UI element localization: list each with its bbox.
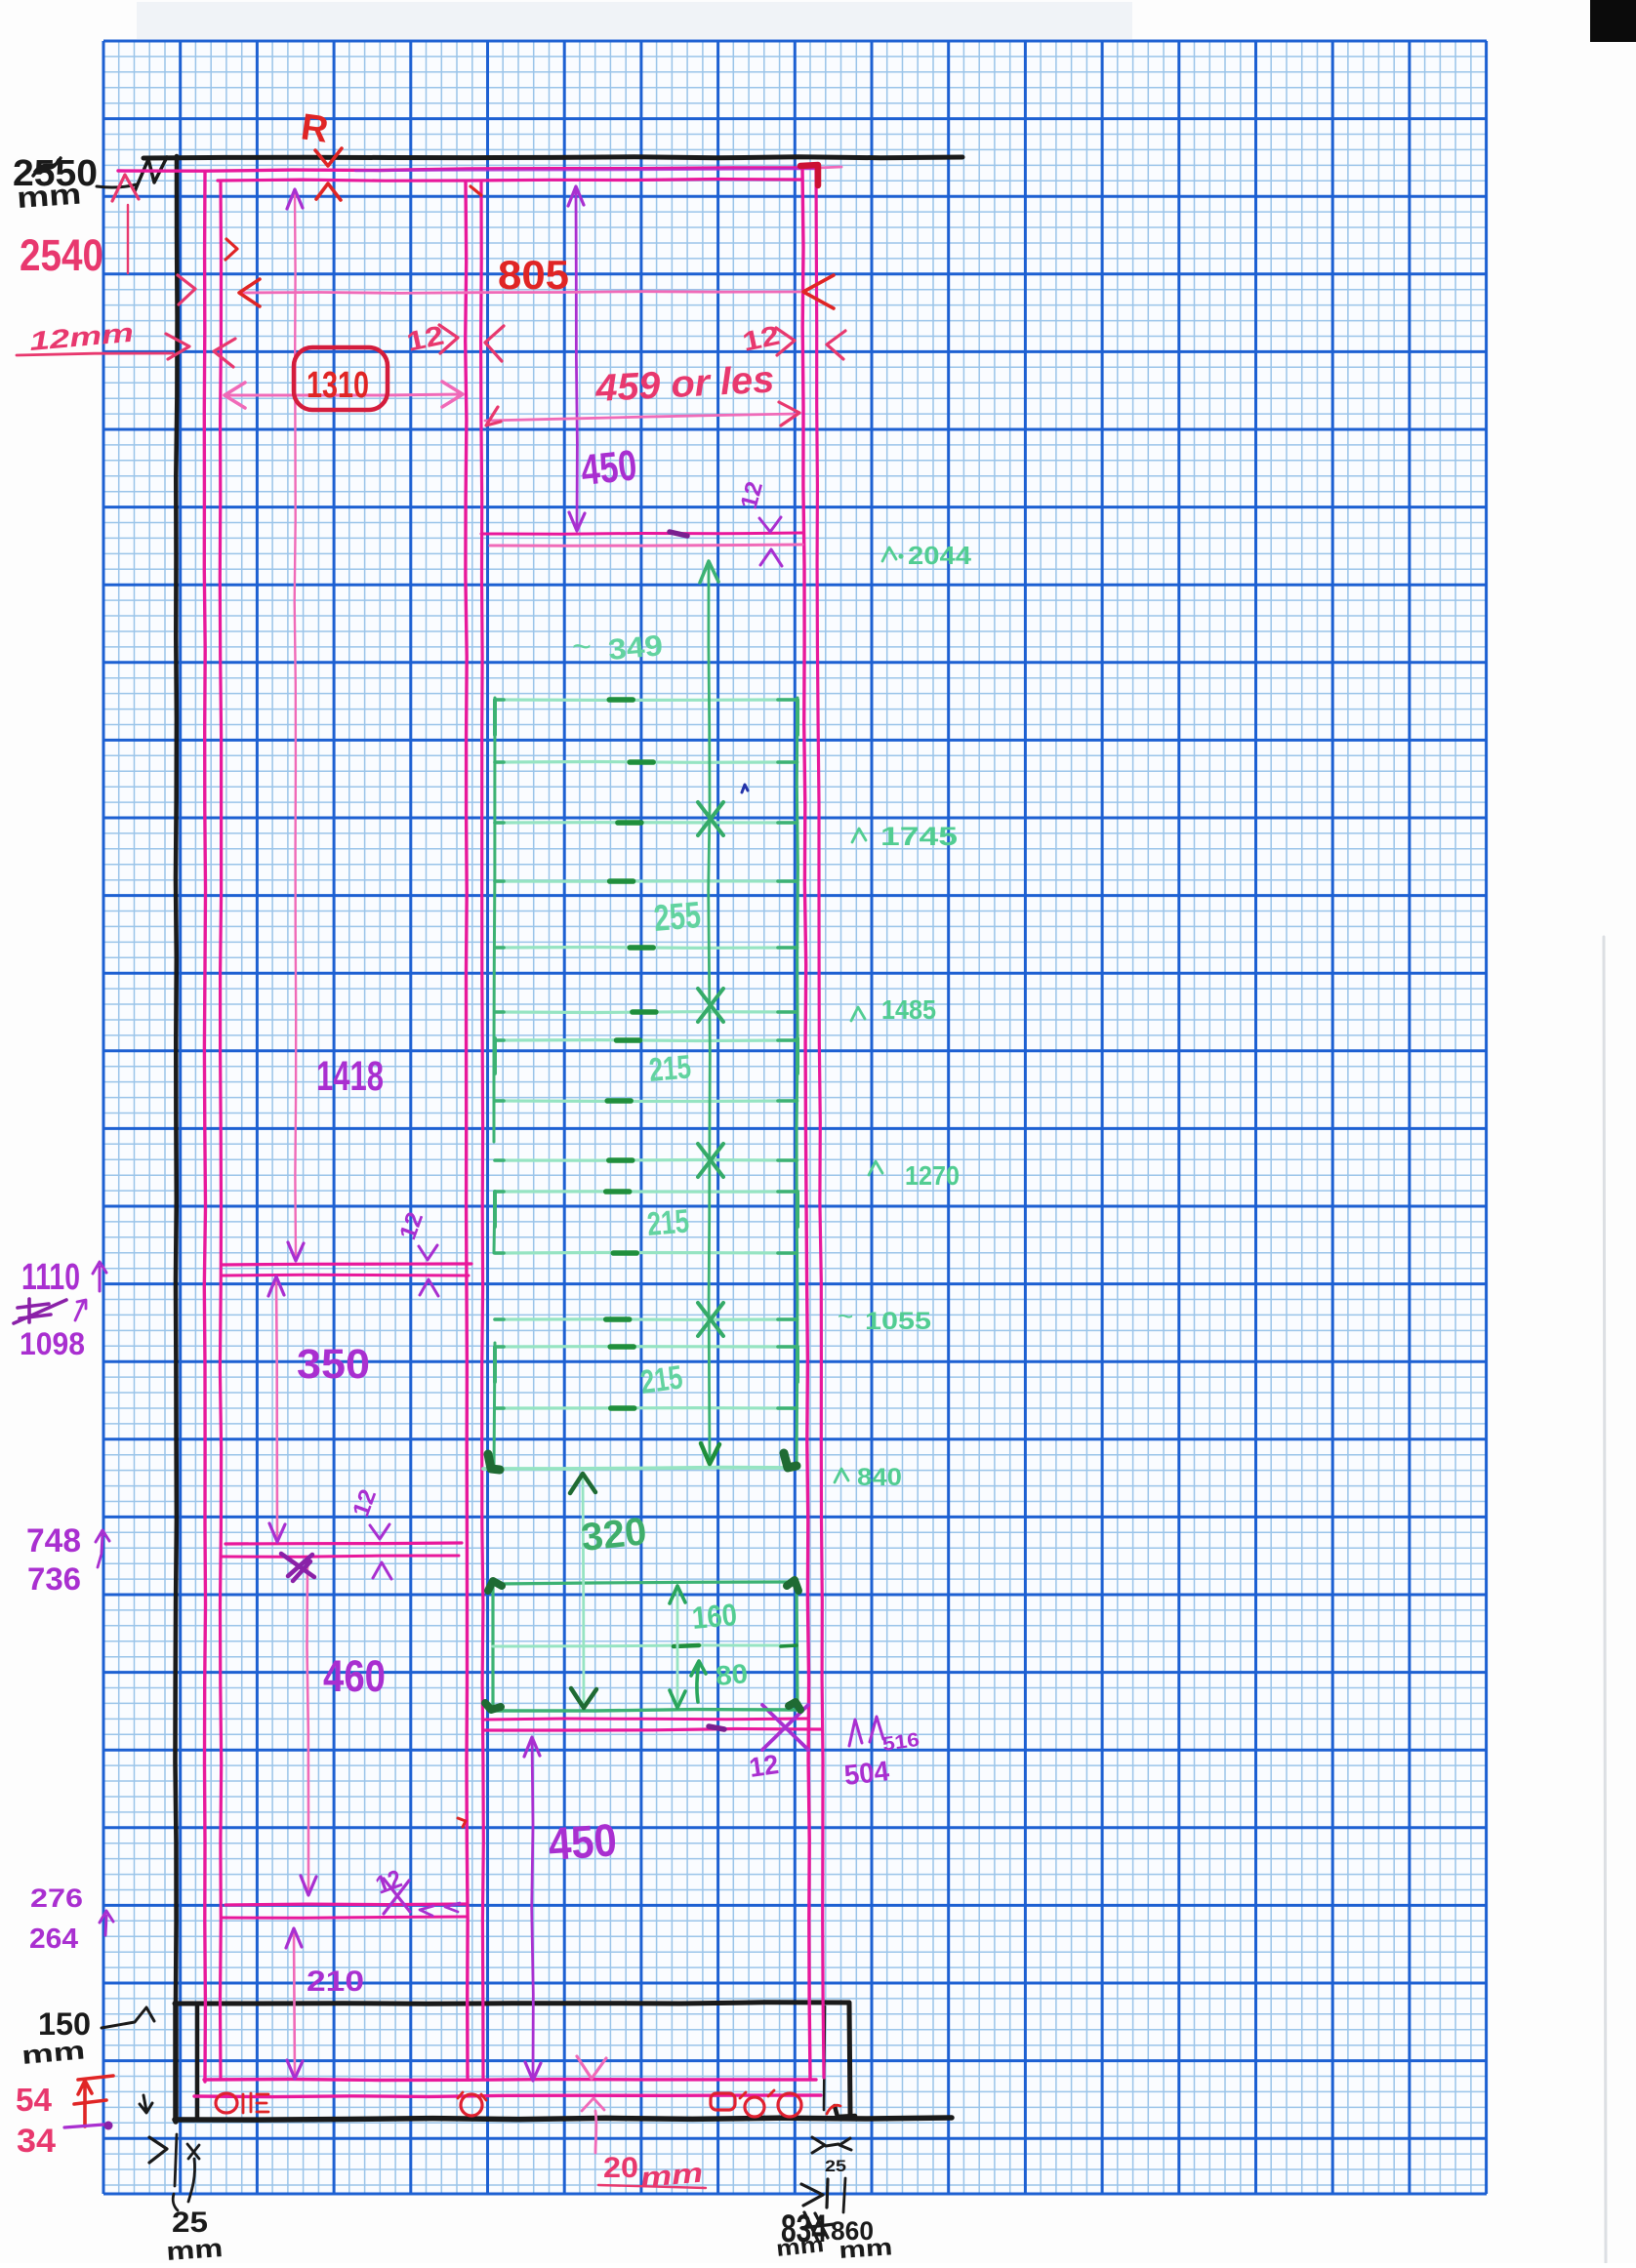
svg-text:54: 54: [16, 2082, 53, 2118]
svg-text:215: 215: [647, 1048, 692, 1089]
svg-text:mm: mm: [20, 2035, 86, 2070]
svg-text:80: 80: [715, 1658, 750, 1691]
svg-text:748: 748: [26, 1522, 81, 1559]
svg-text:160: 160: [690, 1597, 738, 1636]
svg-text:276: 276: [30, 1883, 83, 1913]
svg-text:1310: 1310: [307, 365, 369, 406]
svg-text:460: 460: [323, 1651, 386, 1701]
svg-text:~: ~: [572, 628, 592, 666]
svg-text:264: 264: [29, 1924, 78, 1955]
svg-text:12: 12: [748, 1749, 781, 1783]
svg-text:504: 504: [842, 1756, 890, 1792]
svg-text:34: 34: [17, 2123, 56, 2160]
svg-text:210: 210: [307, 1965, 364, 1998]
svg-text:255: 255: [652, 895, 702, 940]
svg-text:349: 349: [607, 629, 665, 667]
svg-text:350: 350: [297, 1341, 370, 1388]
svg-text:450: 450: [547, 1813, 619, 1870]
svg-text:1418: 1418: [316, 1053, 384, 1100]
svg-text:1270: 1270: [905, 1160, 960, 1191]
svg-text:mm: mm: [838, 2234, 894, 2263]
svg-text:840: 840: [857, 1464, 902, 1491]
svg-text:20: 20: [603, 2152, 638, 2184]
svg-text:1485: 1485: [881, 994, 936, 1025]
svg-text:1110: 1110: [21, 1257, 80, 1298]
svg-text:mm: mm: [775, 2231, 825, 2261]
svg-text:1745: 1745: [880, 822, 958, 851]
svg-text:215: 215: [638, 1358, 685, 1401]
svg-text:450: 450: [579, 441, 639, 495]
svg-text:2044: 2044: [908, 541, 972, 570]
svg-text:1055: 1055: [865, 1308, 931, 1335]
svg-text:~: ~: [838, 1301, 853, 1331]
svg-text:25: 25: [825, 2157, 846, 2175]
svg-text:2540: 2540: [20, 230, 103, 280]
svg-text:mm: mm: [165, 2233, 224, 2263]
svg-text:mm: mm: [16, 178, 82, 215]
svg-text:1098: 1098: [20, 1326, 85, 1361]
svg-text:R: R: [299, 106, 331, 150]
svg-text:215: 215: [645, 1202, 690, 1243]
svg-text:736: 736: [27, 1561, 81, 1597]
svg-text:805: 805: [498, 252, 569, 298]
svg-text:320: 320: [579, 1510, 648, 1559]
